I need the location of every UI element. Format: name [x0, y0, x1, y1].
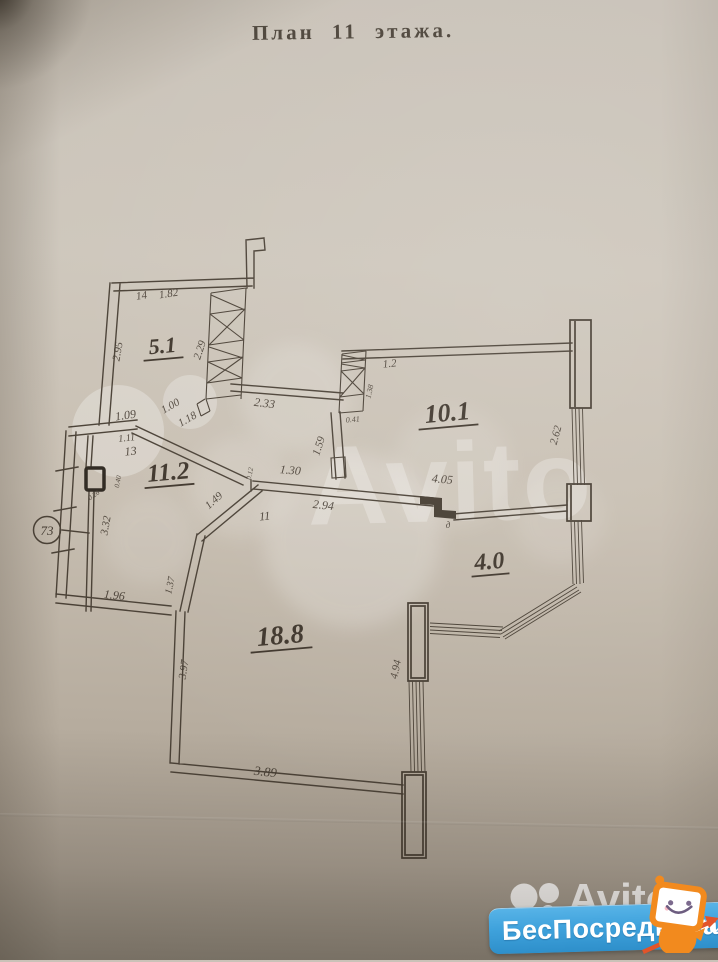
room-area-value: 18.8	[255, 618, 305, 652]
room-area-label: 10.1	[416, 395, 478, 429]
dimension-label: 1.82	[158, 287, 179, 302]
room-area-value: 11.2	[146, 457, 191, 488]
dimension-label: д	[446, 520, 451, 530]
dimension-label: 3.89	[252, 763, 278, 780]
floor-plan-photo: { "title": "План 11 этажа.", "watermark"…	[0, 0, 718, 960]
dimension-label: 3.97	[177, 659, 192, 681]
avito-logo-dot	[539, 883, 559, 903]
watermark-blob	[105, 495, 195, 585]
dimension-label: 13	[124, 443, 137, 458]
dimension-label: 0.40	[113, 474, 123, 488]
apartment-number-badge: 73	[34, 517, 61, 544]
dimension-label: 1.38	[364, 384, 376, 400]
dimension-label: 14	[135, 289, 148, 302]
dimension-label: 2.95	[110, 340, 125, 362]
watermark-blob	[190, 437, 290, 537]
room-area-label: 11.2	[142, 457, 194, 488]
room-area-label: 18.8	[248, 617, 312, 652]
dimension-label: 1.09	[114, 407, 137, 424]
room-area-value: 10.1	[423, 396, 471, 429]
dimension-label: 11	[259, 509, 271, 524]
room-area-label: 4.0	[469, 547, 509, 576]
dimension-label: 4.94	[388, 658, 404, 680]
dimension-label: 1.2	[382, 357, 397, 370]
dimension-label: 2.33	[253, 395, 276, 411]
room-area-value: 4.0	[472, 548, 505, 577]
mascot-head	[649, 875, 706, 930]
apartment-number: 73	[41, 523, 55, 538]
dimension-label: 0.41	[345, 414, 360, 424]
dimension-label: 1.30	[279, 462, 301, 478]
dimension-label: 4.05	[431, 471, 453, 487]
dimension-label: 1.96	[103, 587, 125, 603]
dimension-label: 2.29	[191, 339, 209, 361]
dimension-label: 1.37	[163, 575, 178, 595]
floor-plan-drawing: Avito 73 5.111.210.14.018.8 141.822.952.…	[0, 0, 718, 960]
room-area-label: 5.1	[141, 331, 183, 360]
mascot-character	[641, 878, 718, 962]
dimension-label: 2.94	[312, 497, 334, 513]
room-area-value: 5.1	[148, 332, 178, 359]
